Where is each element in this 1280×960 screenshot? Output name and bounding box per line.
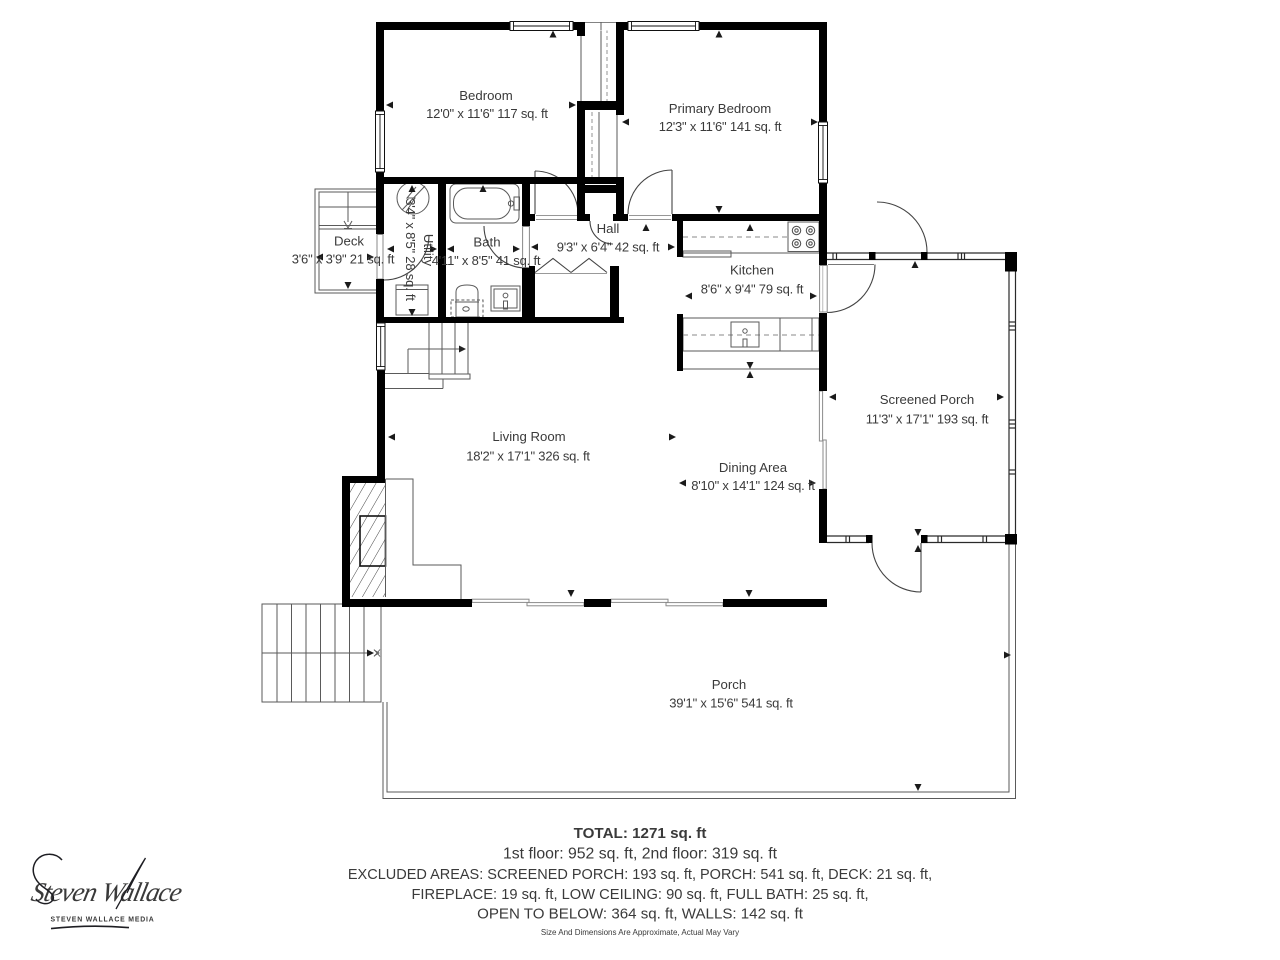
svg-text:12'3" x 11'6" 141 sq. ft: 12'3" x 11'6" 141 sq. ft	[659, 119, 782, 134]
svg-text:3'6" x 3'9" 21 sq. ft: 3'6" x 3'9" 21 sq. ft	[292, 252, 395, 267]
svg-text:Bath: Bath	[473, 235, 500, 250]
svg-text:Bedroom: Bedroom	[459, 88, 513, 103]
svg-text:3'4" x 8'5" 28 sq. ft: 3'4" x 8'5" 28 sq. ft	[403, 198, 418, 301]
svg-text:11'3" x 17'1" 193 sq. ft: 11'3" x 17'1" 193 sq. ft	[866, 412, 989, 427]
svg-text:Kitchen: Kitchen	[730, 263, 774, 278]
svg-text:Size And Dimensions Are Approx: Size And Dimensions Are Approximate, Act…	[541, 928, 739, 937]
svg-text:Screened Porch: Screened Porch	[880, 392, 975, 407]
svg-text:12'0" x 11'6" 117 sq. ft: 12'0" x 11'6" 117 sq. ft	[426, 106, 548, 121]
svg-text:Primary Bedroom: Primary Bedroom	[669, 101, 772, 116]
svg-text:1st floor: 952 sq. ft, 2nd flo: 1st floor: 952 sq. ft, 2nd floor: 319 sq…	[503, 846, 778, 863]
svg-text:Deck: Deck	[334, 234, 364, 249]
svg-text:Steven Wallace: Steven Wallace	[29, 877, 185, 907]
svg-text:OPEN TO BELOW: 364 sq. ft, WAL: OPEN TO BELOW: 364 sq. ft, WALLS: 142 sq…	[477, 906, 804, 923]
svg-text:Living Room: Living Room	[492, 429, 565, 444]
svg-text:8'10" x 14'1" 124 sq. ft: 8'10" x 14'1" 124 sq. ft	[691, 478, 815, 493]
svg-text:Porch: Porch	[712, 677, 746, 692]
svg-text:9'3" x 6'4" 42 sq. ft: 9'3" x 6'4" 42 sq. ft	[557, 240, 660, 255]
svg-text:Dining Area: Dining Area	[719, 460, 788, 475]
svg-text:EXCLUDED AREAS: SCREENED PORCH: EXCLUDED AREAS: SCREENED PORCH: 193 sq. …	[348, 867, 932, 883]
svg-text:FIREPLACE: 19 sq. ft, LOW CEIL: FIREPLACE: 19 sq. ft, LOW CEILING: 90 sq…	[411, 887, 868, 903]
svg-text:8'6" x 9'4" 79 sq. ft: 8'6" x 9'4" 79 sq. ft	[701, 282, 804, 297]
svg-text:18'2" x 17'1" 326 sq. ft: 18'2" x 17'1" 326 sq. ft	[466, 449, 590, 464]
svg-text:4'11" x 8'5" 41 sq. ft: 4'11" x 8'5" 41 sq. ft	[432, 253, 541, 268]
svg-text:STEVEN WALLACE MEDIA: STEVEN WALLACE MEDIA	[51, 917, 155, 924]
svg-text:Hall: Hall	[597, 221, 620, 236]
svg-text:39'1" x 15'6" 541 sq. ft: 39'1" x 15'6" 541 sq. ft	[669, 696, 793, 711]
svg-text:TOTAL: 1271 sq. ft: TOTAL: 1271 sq. ft	[574, 825, 707, 842]
